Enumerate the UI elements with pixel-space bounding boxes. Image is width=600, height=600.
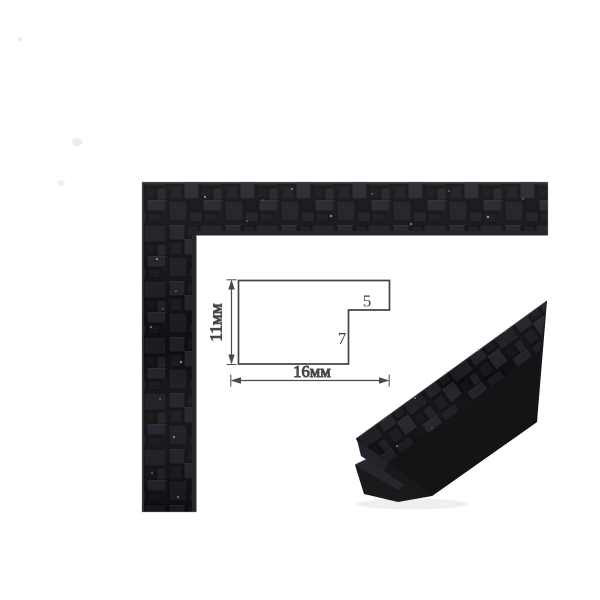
frame-inner-edge-vertical [192,236,197,513]
frame-inner-edge-horizontal [197,231,549,236]
step-width-label: 5 [363,292,372,311]
step-height-label: 7 [338,329,347,348]
height-dimension-label: 11мм [207,303,226,341]
stick-shadow [357,499,467,510]
product-photo: 11мм 16мм 5 7 [0,0,600,600]
width-dimension-label: 16мм [293,362,331,381]
product-image: 11мм 16мм 5 7 [0,0,600,600]
photo-background [0,0,600,600]
